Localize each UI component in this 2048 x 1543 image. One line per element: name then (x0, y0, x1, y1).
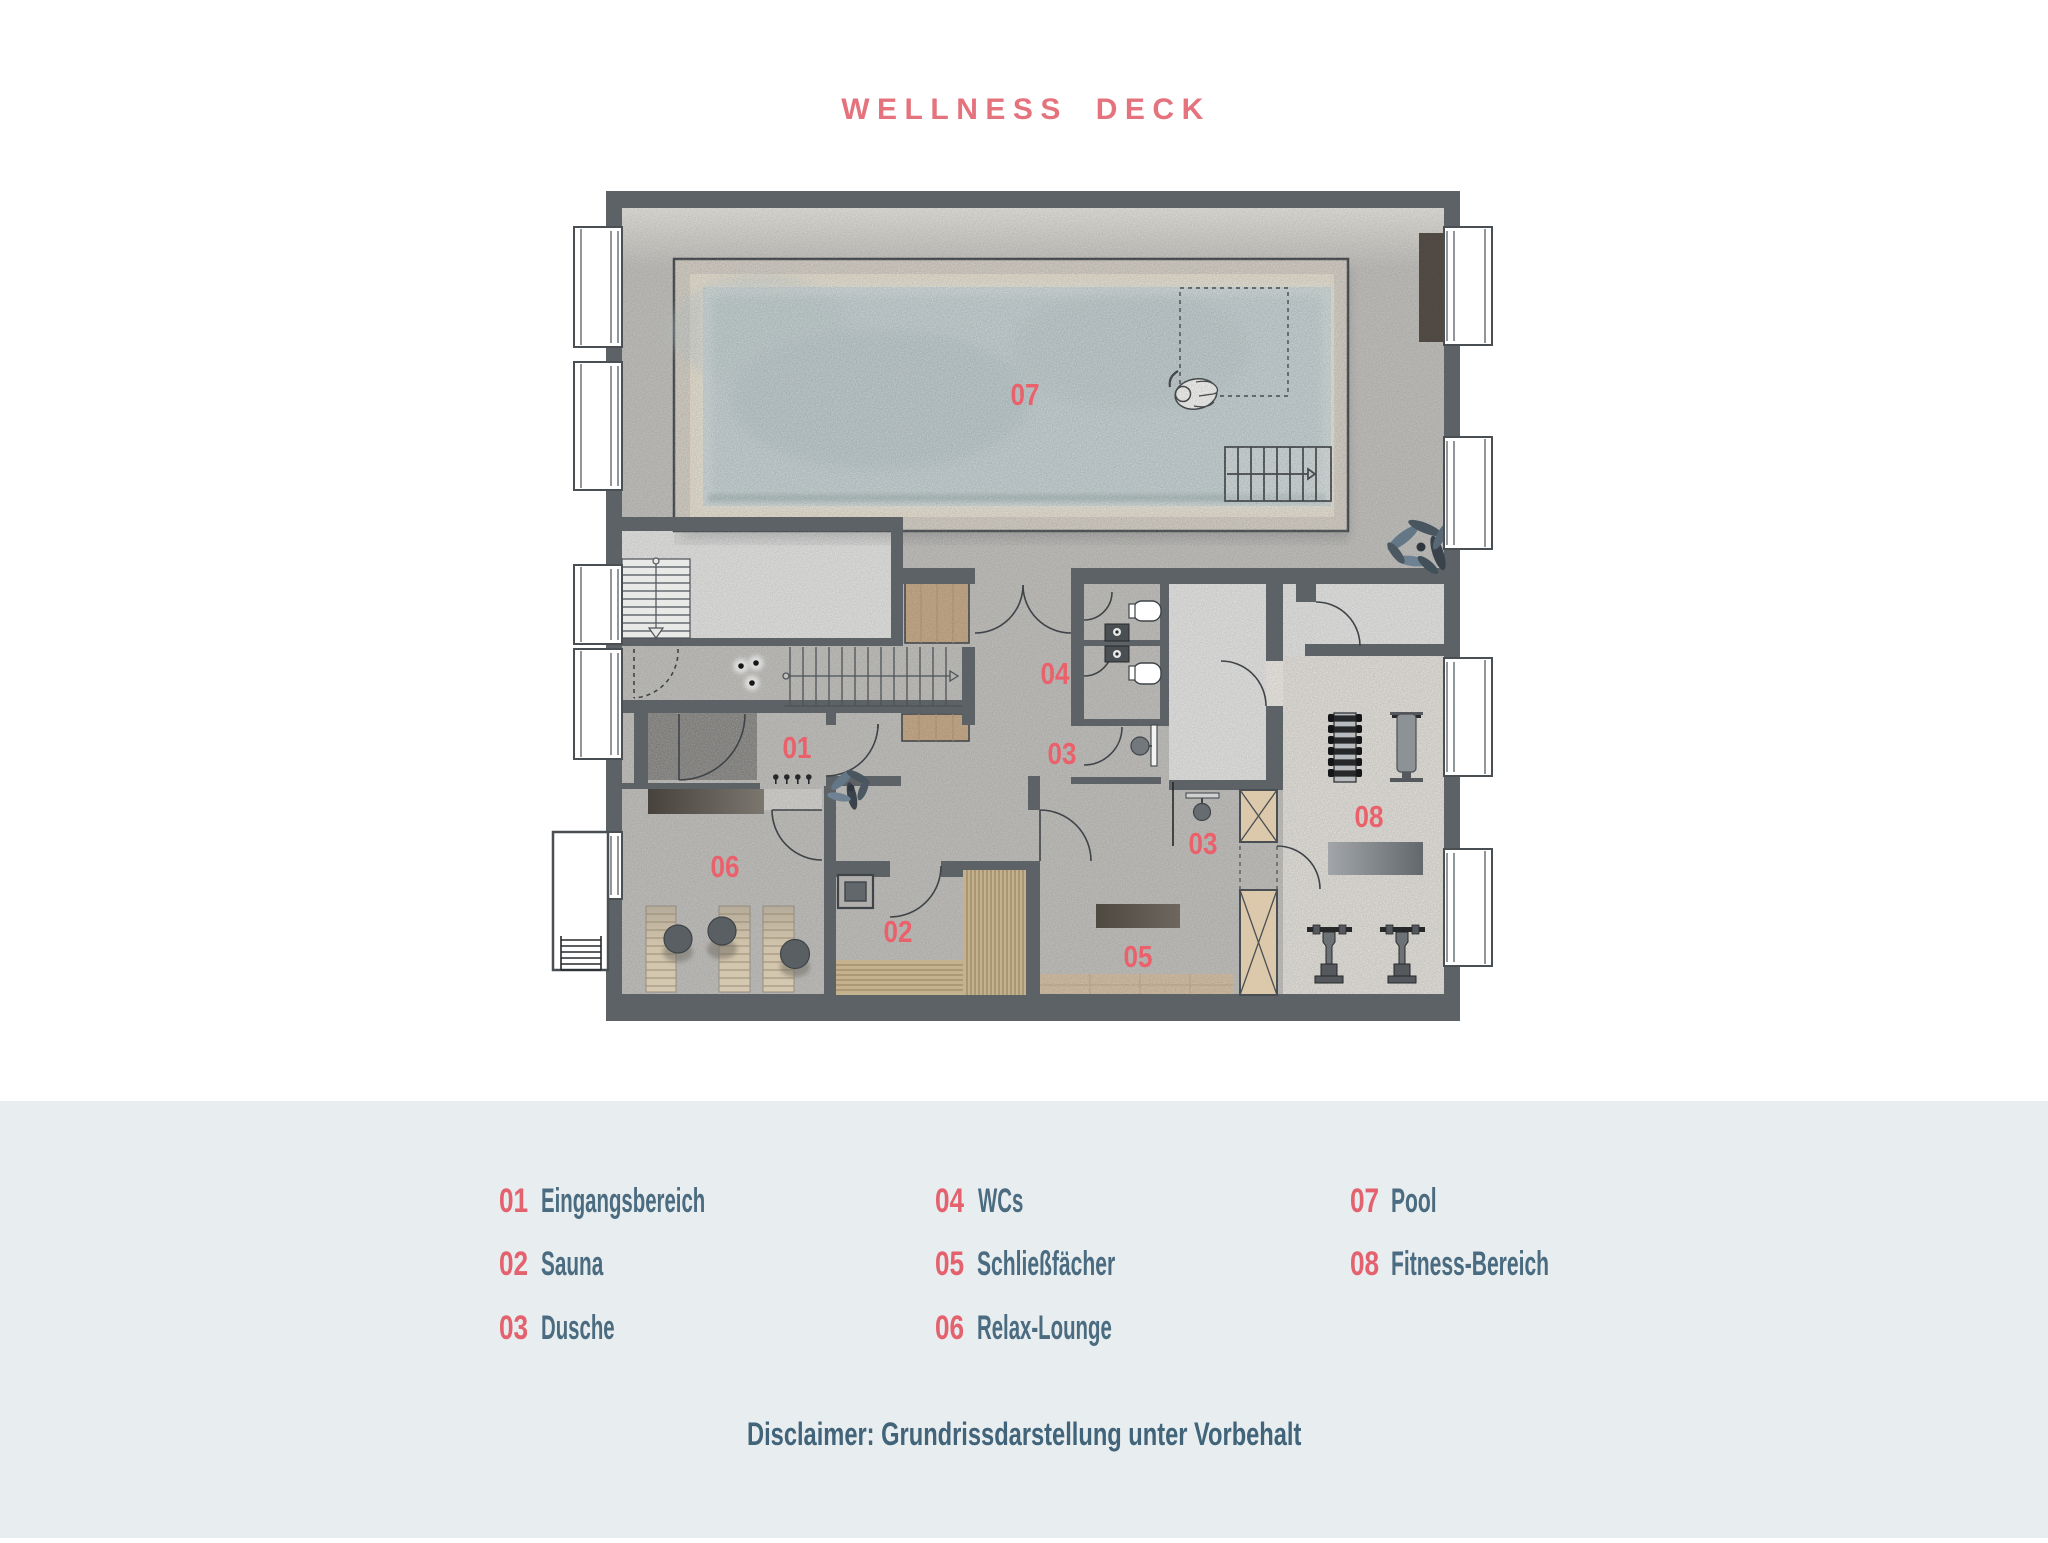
svg-text:Disclaimer: Grundrissdarstellu: Disclaimer: Grundrissdarstellung unter V… (747, 1417, 1302, 1452)
svg-text:01: 01 (499, 1183, 528, 1220)
svg-text:05: 05 (935, 1246, 964, 1283)
svg-text:Eingangsbereich: Eingangsbereich (541, 1182, 705, 1220)
svg-text:05: 05 (1124, 940, 1153, 975)
svg-text:Schließfächer: Schließfächer (977, 1244, 1115, 1282)
svg-text:08: 08 (1355, 800, 1384, 835)
svg-text:03: 03 (1048, 737, 1077, 772)
svg-text:07: 07 (1350, 1183, 1379, 1220)
svg-text:01: 01 (783, 731, 812, 766)
svg-text:02: 02 (884, 915, 913, 950)
svg-text:02: 02 (499, 1246, 528, 1283)
svg-text:08: 08 (1350, 1246, 1379, 1283)
svg-text:Relax-Lounge: Relax-Lounge (977, 1309, 1112, 1347)
svg-text:Sauna: Sauna (541, 1245, 603, 1282)
svg-text:06: 06 (711, 850, 740, 885)
svg-text:WCs: WCs (978, 1182, 1023, 1220)
svg-text:06: 06 (935, 1310, 964, 1347)
svg-text:07: 07 (1011, 378, 1040, 413)
svg-text:04: 04 (1041, 657, 1070, 692)
svg-text:Fitness-Bereich: Fitness-Bereich (1391, 1244, 1549, 1282)
svg-text:WELLNESS DECK: WELLNESS DECK (841, 93, 1211, 126)
svg-text:03: 03 (499, 1310, 528, 1347)
svg-text:04: 04 (935, 1183, 964, 1220)
svg-text:03: 03 (1189, 827, 1218, 862)
svg-text:Dusche: Dusche (541, 1309, 615, 1347)
svg-text:Pool: Pool (1391, 1181, 1437, 1219)
